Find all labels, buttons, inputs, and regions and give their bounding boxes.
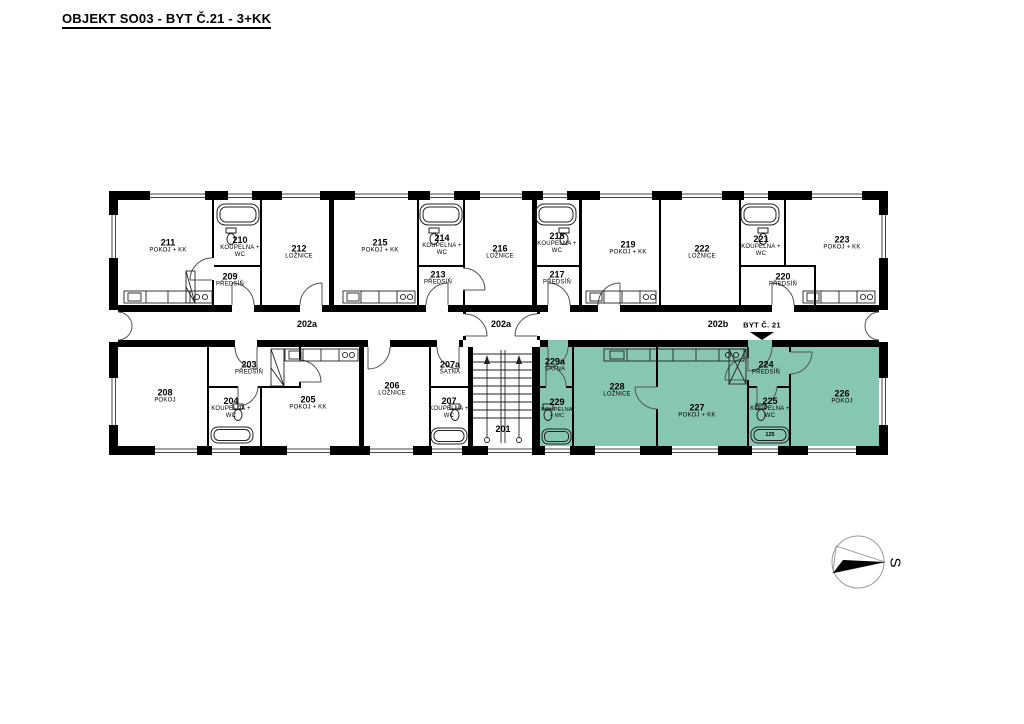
stairs-icon	[473, 350, 532, 443]
compass-icon	[832, 536, 885, 588]
floor-plan-page: OBJEKT SO03 - BYT Č.21 - 3+KK	[0, 0, 1024, 724]
apartment-highlight	[540, 344, 879, 447]
floor-plan-drawing	[0, 0, 1024, 724]
entrance-arrow-icon	[750, 332, 774, 340]
